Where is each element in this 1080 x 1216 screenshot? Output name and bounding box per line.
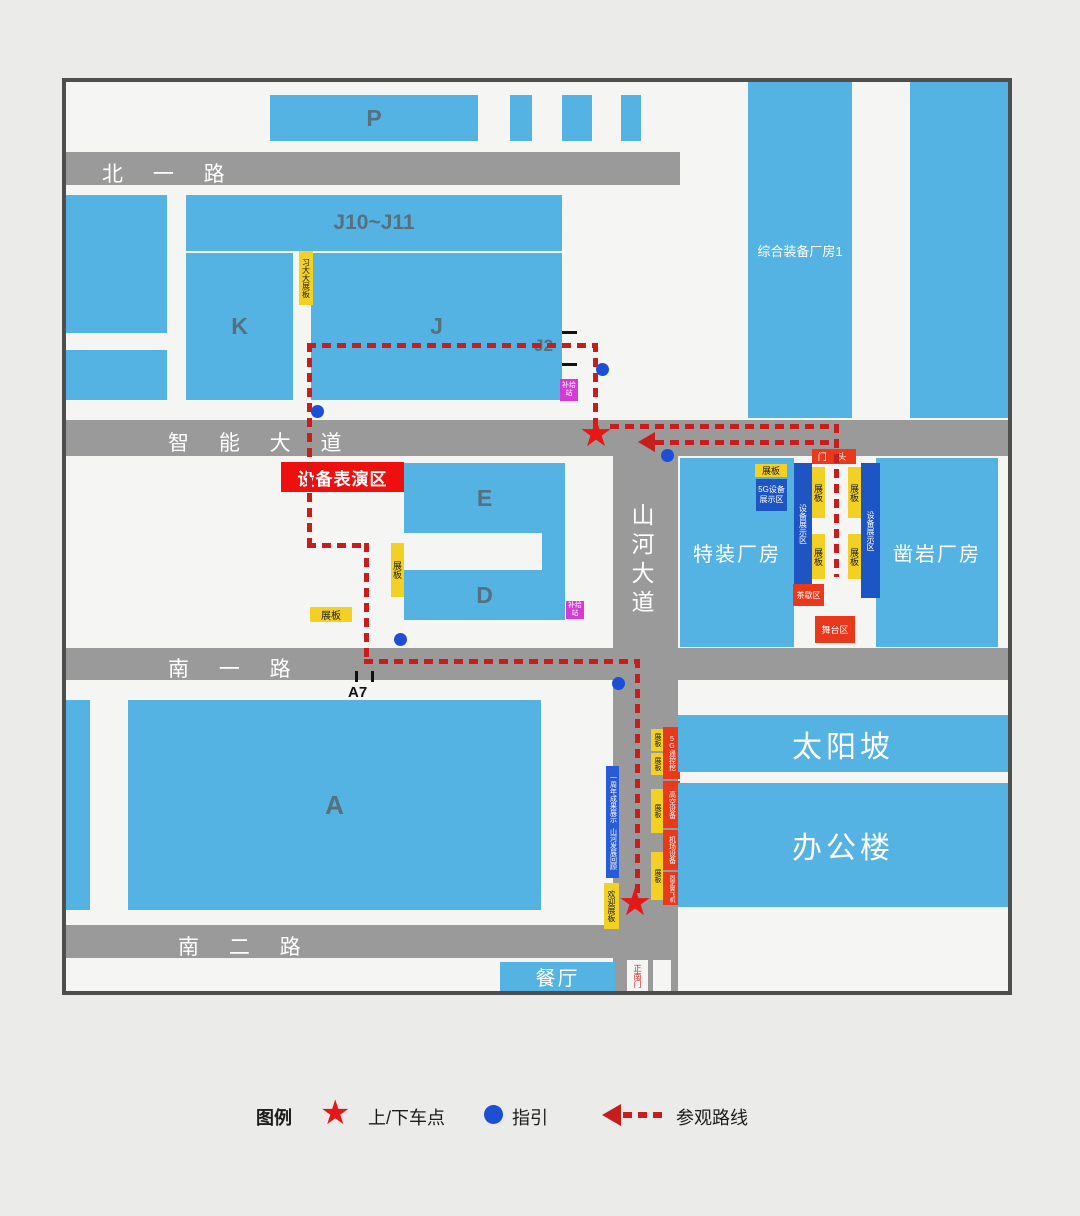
legend-pickup-label: 上/下车点: [368, 1104, 445, 1130]
building-parking: P: [270, 95, 478, 141]
building-comprehensive-plant: 综合装备厂房1: [748, 82, 852, 418]
display-board-tezhuang: 展板: [755, 464, 787, 477]
building-j10-j11: J10~J11: [186, 195, 562, 251]
route-segment-mid: [307, 543, 369, 548]
building-left-upper: [66, 195, 167, 333]
legend-dot-icon: [484, 1105, 503, 1124]
road-label-south-2: 南 二 路: [178, 931, 313, 961]
strip-board-4: 展板: [651, 852, 663, 900]
building-a-label: A: [325, 790, 344, 821]
building-k: K: [186, 253, 293, 400]
guide-dot-2: [596, 363, 609, 376]
zone-stage: 舞台区: [815, 616, 855, 643]
corridor-board-right-2: 展板: [848, 534, 861, 579]
supply-station-1: 补给站: [560, 379, 578, 401]
route-segment-k-south: [307, 343, 312, 547]
guide-dot-5: [612, 677, 625, 690]
zone-tea-break: 茶歇区: [793, 584, 824, 606]
legend-route-arrow-icon: [602, 1104, 621, 1126]
building-sun-slope: 太阳坡: [678, 715, 1008, 772]
route-segment-j: [307, 343, 597, 348]
zone-device-performance: 设备表演区: [281, 462, 404, 492]
road-label-shanhe-avenue: 山河大道: [624, 498, 658, 623]
zone-5g-display: 5G设备展示区: [756, 479, 787, 511]
building-small-2: [562, 95, 592, 141]
a7-tick-1: [355, 671, 358, 682]
building-office: 办公楼: [678, 783, 1008, 907]
building-canteen-label: 餐厅: [536, 962, 580, 991]
legend-guide-label: 指引: [512, 1104, 548, 1130]
legend-route-dash-icon: [623, 1112, 663, 1118]
pickup-star-1: ★: [579, 415, 613, 453]
building-left-lower: [66, 350, 167, 400]
building-comprehensive-plant-label: 综合装备厂房1: [757, 241, 842, 260]
supply-station-2: 补给站: [566, 601, 584, 619]
building-e-d-link: [542, 533, 565, 570]
corridor-board-right-1: 展板: [848, 467, 861, 518]
a7-tick-2: [371, 671, 374, 682]
building-a-west: [66, 700, 90, 910]
building-small-1: [510, 95, 532, 141]
guide-dot-3: [661, 449, 674, 462]
building-d-label: D: [476, 582, 493, 609]
door-tick-2: [562, 363, 577, 366]
xi-display-board: 习大大展板: [299, 251, 313, 305]
route-segment-south1: [364, 659, 638, 664]
route-arrow-west: [638, 432, 655, 452]
building-j: J: [311, 253, 562, 400]
zone-equipment-display-right: 设备展示区: [861, 463, 880, 598]
road-label-north-1: 北 一 路: [102, 158, 237, 188]
anniversary-board: 一周年成果展示 山河发展回顾: [606, 766, 619, 878]
route-segment-corridor: [834, 424, 839, 577]
building-tall-right: [910, 82, 1008, 418]
guide-dot-1: [311, 405, 324, 418]
legend-star-icon: ★: [320, 1096, 350, 1130]
road-label-smart-avenue: 智 能 大 道: [168, 427, 354, 457]
building-e: E: [404, 463, 565, 533]
strip-board-2: 展板: [651, 753, 663, 775]
building-small-3: [621, 95, 641, 141]
route-segment-smart-lower: [655, 440, 838, 445]
guide-dot-4: [394, 633, 407, 646]
door-tick-1: [562, 331, 577, 334]
building-rock-drill-plant: 凿岩厂房: [876, 458, 998, 647]
anniversary-line2: 山河发展回顾: [608, 828, 618, 870]
strip-board-3: 展板: [651, 789, 663, 833]
welcome-board: 欢迎展板: [604, 883, 619, 929]
pickup-star-2: ★: [618, 884, 652, 922]
building-j-label: J: [430, 313, 443, 340]
route-segment-to-south1: [364, 543, 369, 662]
route-segment-smart-upper: [610, 424, 838, 429]
site-map-page: 北 一 路 智 能 大 道 山河大道 南 一 路 南 二 路 P 综合装备厂房1…: [0, 0, 1080, 1216]
corridor-board-left-1: 展板: [812, 467, 825, 518]
building-d: D: [404, 570, 565, 620]
building-special-plant-label: 特装厂房: [693, 538, 781, 567]
road-label-south-1: 南 一 路: [168, 653, 303, 683]
building-rock-drill-plant-label: 凿岩厂房: [893, 538, 981, 567]
display-board-south: 展板: [310, 607, 352, 622]
building-j10-j11-label: J10~J11: [333, 211, 414, 235]
building-office-label: 办公楼: [792, 823, 894, 867]
building-canteen: 餐厅: [500, 962, 615, 991]
legend-route-label: 参观路线: [676, 1104, 748, 1130]
strip-board-1: 展板: [651, 729, 663, 751]
anniversary-line1: 一周年成果展示: [608, 774, 618, 823]
building-sun-slope-label: 太阳坡: [792, 722, 894, 766]
display-board-e-d: 展板: [391, 543, 404, 597]
road-south-2: [66, 925, 613, 958]
building-parking-label: P: [366, 105, 381, 132]
marker-a7: A7: [348, 684, 367, 701]
building-e-label: E: [477, 485, 492, 512]
south-gate-column: [653, 960, 671, 991]
building-a: A: [128, 700, 541, 910]
south-gate: 正南门: [627, 960, 648, 991]
corridor-board-left-2: 展板: [812, 534, 825, 579]
building-k-label: K: [231, 313, 248, 340]
zone-equipment-display-left: 设备展示区: [794, 463, 812, 584]
route-segment-to-star2: [635, 659, 640, 898]
legend-title: 图例: [256, 1104, 292, 1130]
